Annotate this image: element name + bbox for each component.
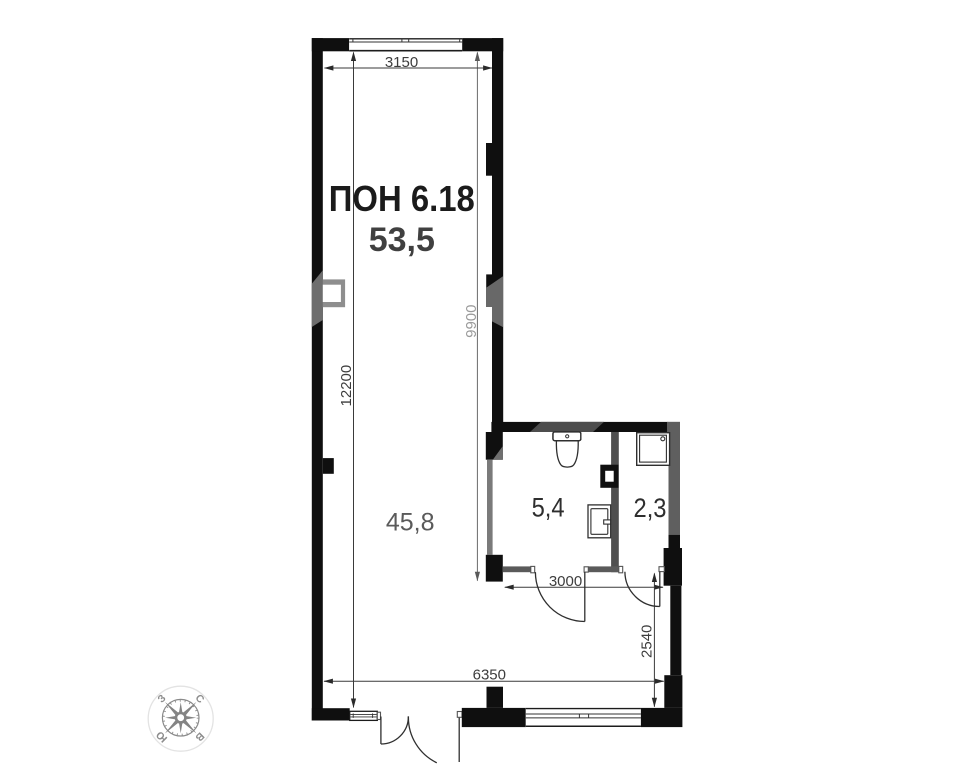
svg-text:2,3: 2,3 [634, 493, 667, 523]
svg-text:9900: 9900 [463, 305, 480, 338]
svg-text:53,5: 53,5 [369, 221, 435, 259]
svg-text:5,4: 5,4 [532, 492, 565, 522]
svg-text:3150: 3150 [385, 54, 418, 71]
svg-text:ПОН 6.18: ПОН 6.18 [329, 178, 475, 219]
svg-text:12200: 12200 [338, 365, 355, 407]
svg-text:2540: 2540 [639, 625, 656, 658]
svg-text:6350: 6350 [473, 667, 506, 684]
svg-text:3000: 3000 [549, 573, 582, 590]
svg-text:45,8: 45,8 [386, 509, 435, 537]
